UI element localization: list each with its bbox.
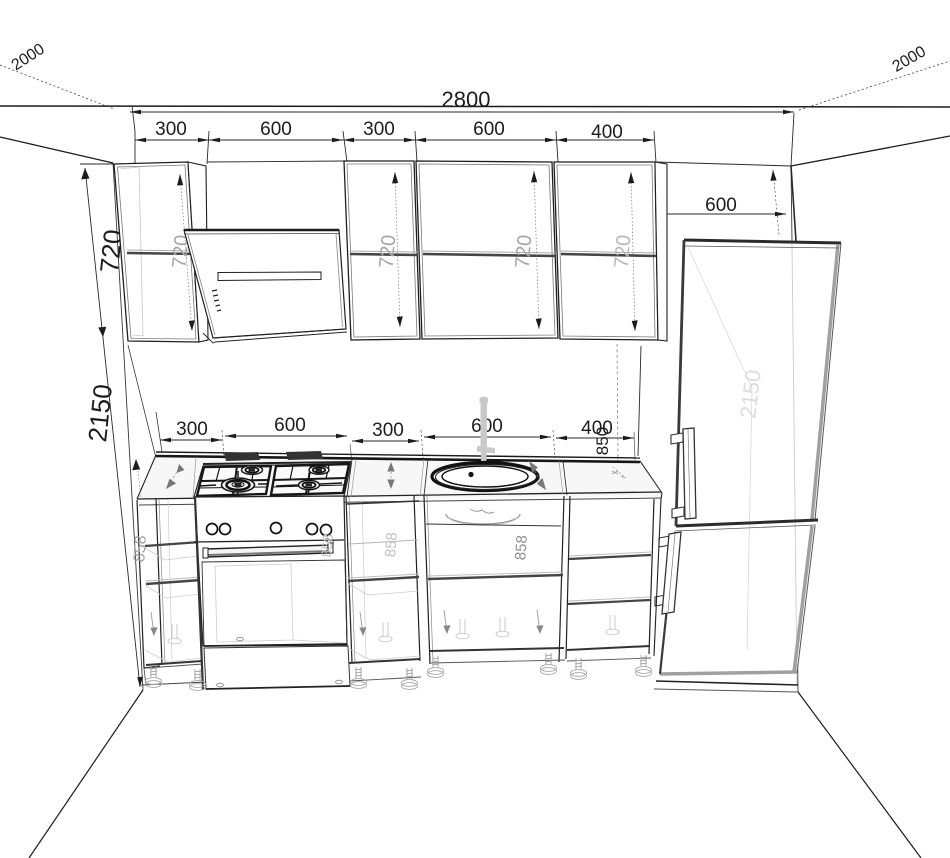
svg-text:850: 850 bbox=[593, 427, 612, 455]
svg-text:300: 300 bbox=[372, 420, 404, 441]
svg-text:720: 720 bbox=[512, 234, 537, 269]
svg-text:720: 720 bbox=[376, 234, 401, 269]
svg-text:2800: 2800 bbox=[442, 87, 491, 112]
svg-text:300: 300 bbox=[155, 119, 187, 140]
svg-text:858: 858 bbox=[512, 535, 531, 561]
svg-text:858: 858 bbox=[318, 533, 336, 558]
svg-text:2150: 2150 bbox=[82, 383, 118, 444]
svg-text:858: 858 bbox=[382, 532, 401, 558]
svg-text:720: 720 bbox=[611, 234, 636, 269]
svg-text:600: 600 bbox=[473, 119, 505, 140]
svg-text:300: 300 bbox=[363, 119, 395, 140]
svg-text:600: 600 bbox=[260, 119, 292, 140]
svg-text:600: 600 bbox=[274, 415, 306, 436]
svg-text:400: 400 bbox=[591, 122, 623, 143]
svg-text:858: 858 bbox=[131, 535, 150, 563]
svg-text:600: 600 bbox=[705, 195, 737, 216]
svg-text:300: 300 bbox=[176, 419, 208, 440]
